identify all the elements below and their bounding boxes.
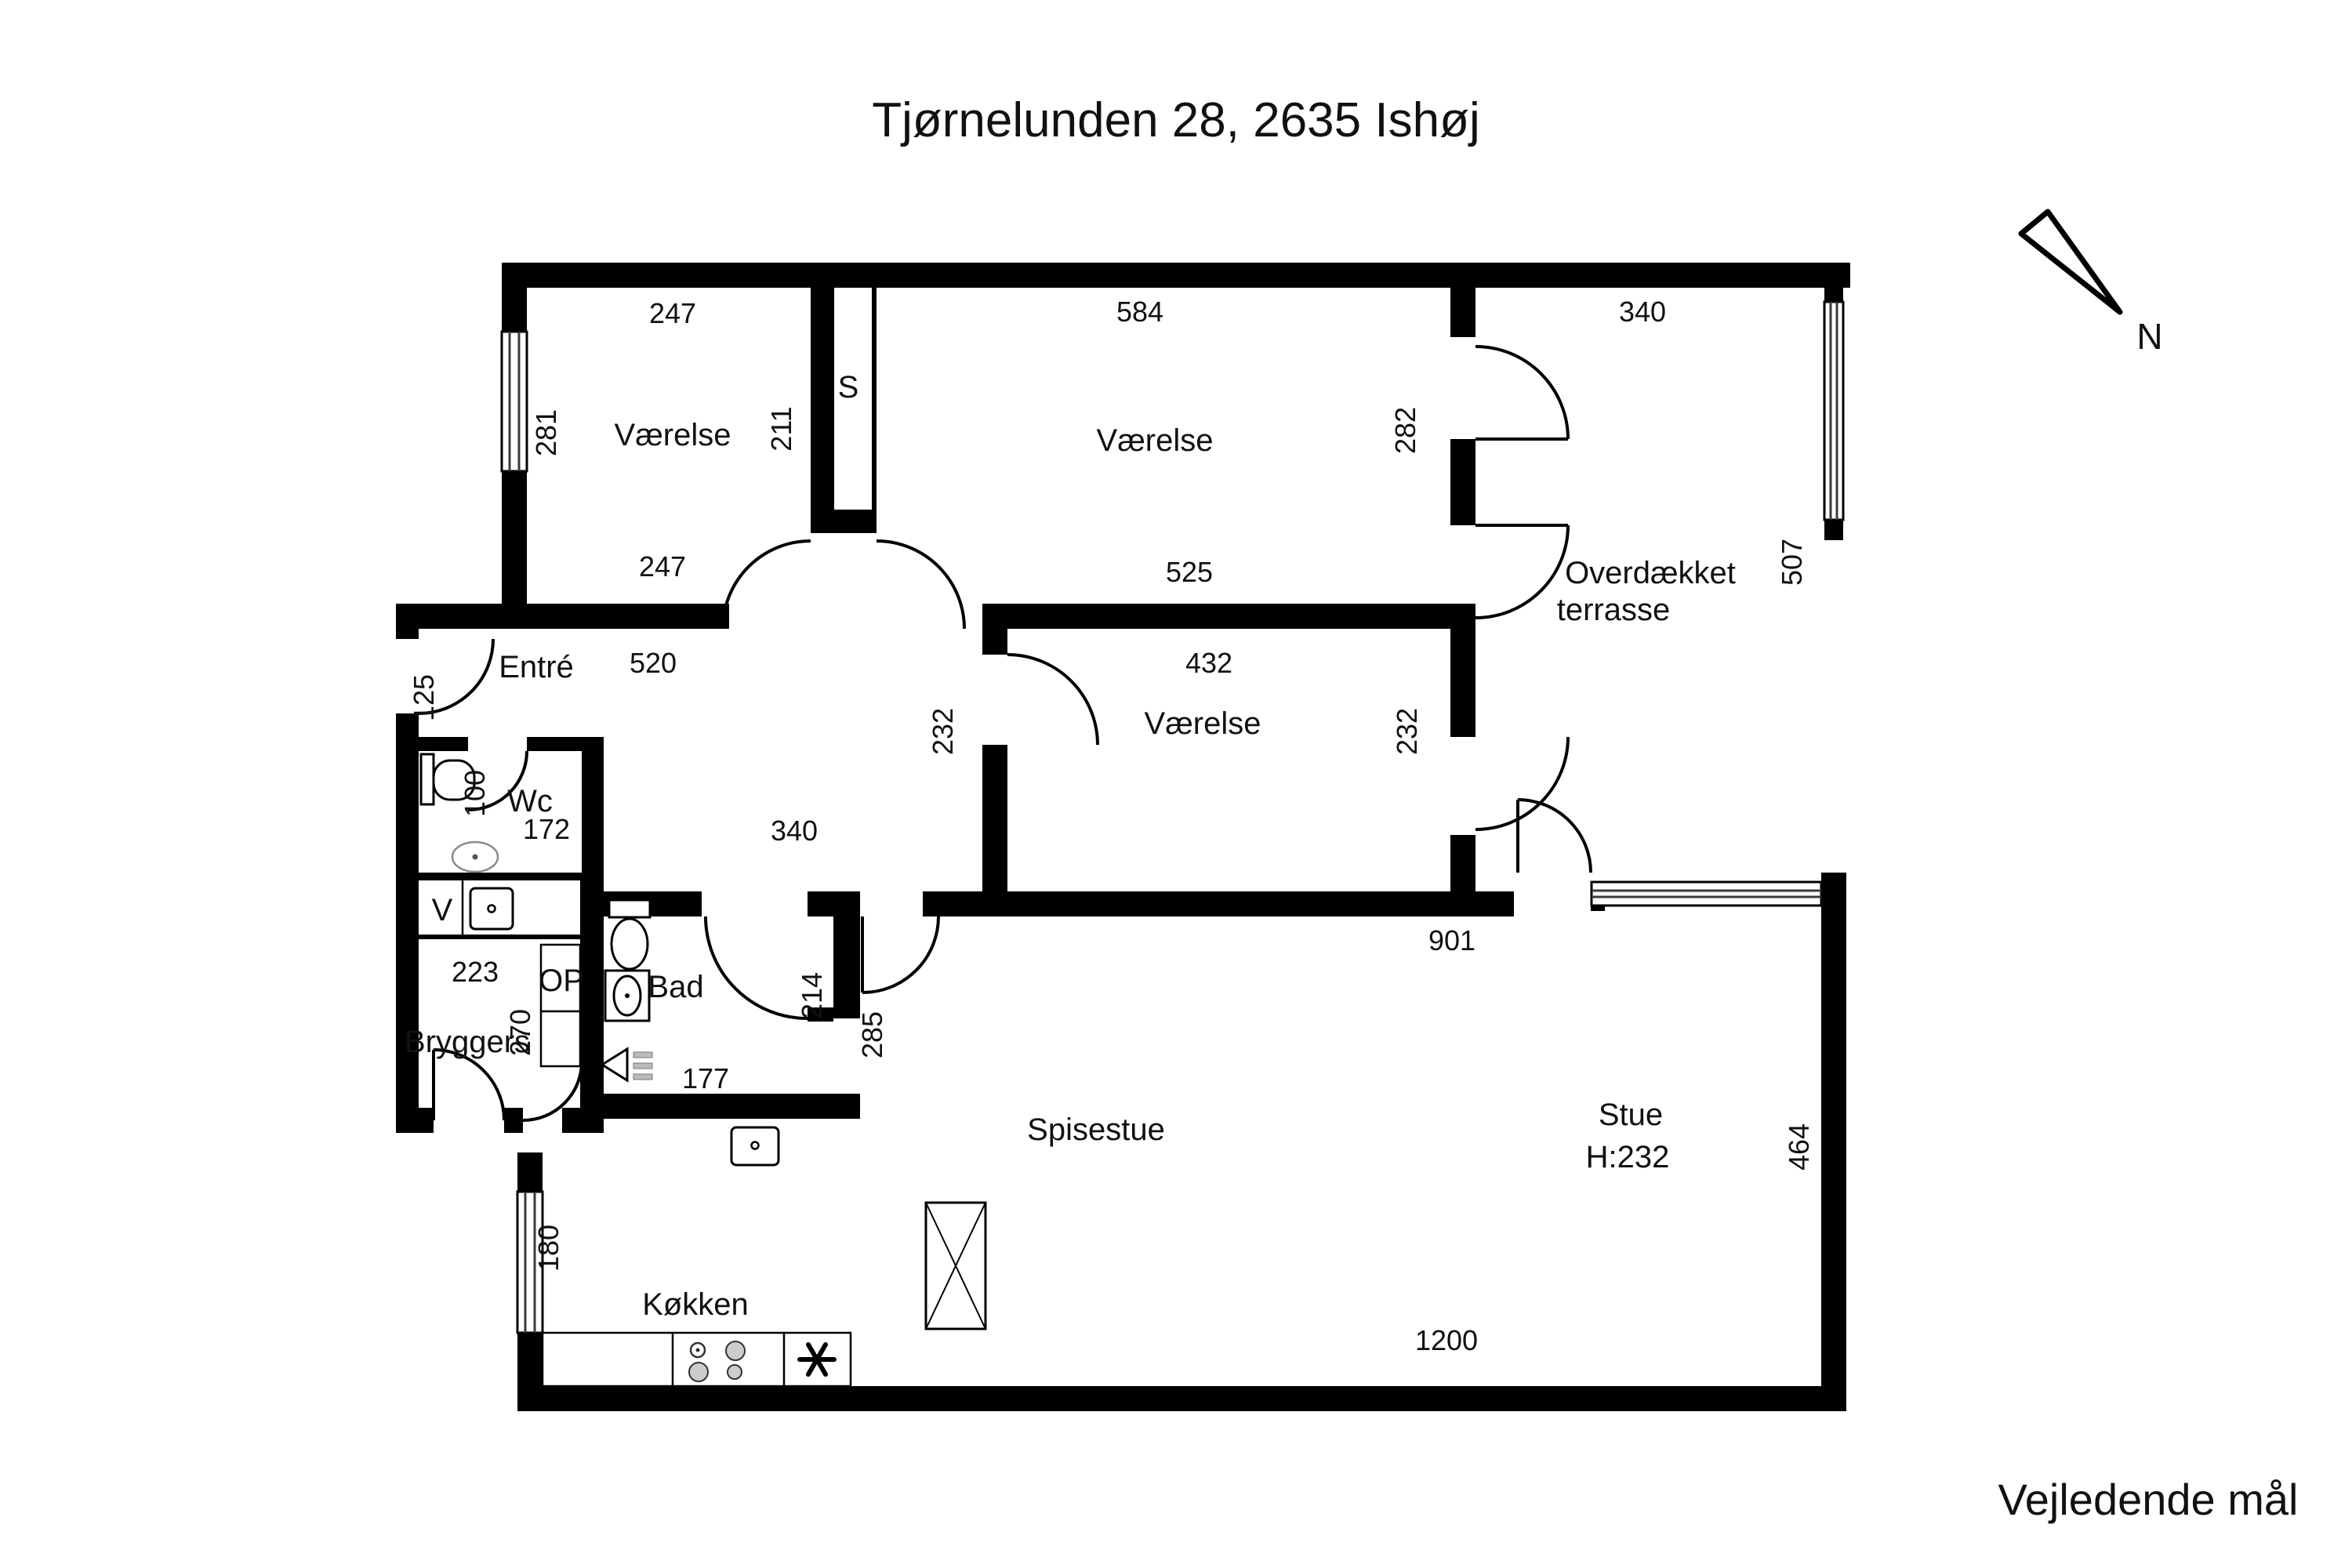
room-koekken: Køkken xyxy=(642,1287,749,1322)
dim-177: 177 xyxy=(682,1062,729,1094)
stue-terrasse-door xyxy=(1518,800,1591,873)
room-vaerelse-3: Værelse xyxy=(1145,706,1261,741)
dim-285: 285 xyxy=(856,1011,888,1058)
dim-223: 223 xyxy=(452,956,499,988)
dim-247-bottom: 247 xyxy=(639,550,686,583)
window-vaerelse-left xyxy=(502,332,527,471)
shower-icon xyxy=(602,1049,652,1080)
page-title: Tjørnelunden 28, 2635 Ishøj xyxy=(0,93,2352,148)
room-terrasse-2: terrasse xyxy=(1557,593,1671,627)
room-stue: Stue xyxy=(1599,1098,1663,1132)
bad-door-arc xyxy=(706,916,808,1018)
dim-584: 584 xyxy=(1116,296,1163,328)
room-entre: Entré xyxy=(499,650,574,684)
dim-214: 214 xyxy=(796,972,828,1019)
dim-232-right: 232 xyxy=(1391,708,1423,755)
hall-spisestue-door xyxy=(862,916,938,993)
dim-270: 270 xyxy=(504,1009,536,1056)
dim-525: 525 xyxy=(1166,556,1213,588)
label-layer: VærelseVærelseVærelseEntréWcBadBryggersK… xyxy=(405,296,1815,1356)
closet-s: S xyxy=(838,370,859,405)
footer-note: Vejledende mål xyxy=(1944,1474,2352,1525)
dim-340-hall: 340 xyxy=(771,815,818,847)
dim-1200: 1200 xyxy=(1415,1324,1478,1356)
compass-north-arrow xyxy=(2021,212,2120,312)
window-terrasse-edge xyxy=(1824,302,1843,520)
room-spisestue: Spisestue xyxy=(1027,1112,1165,1147)
storage-op: OP xyxy=(539,964,584,998)
dim-520: 520 xyxy=(630,647,677,679)
room-stue-height: H:232 xyxy=(1586,1140,1670,1174)
dim-125: 125 xyxy=(408,674,440,721)
dim-211: 211 xyxy=(765,406,797,451)
wc-sink-icon xyxy=(452,842,498,872)
dim-282: 282 xyxy=(1389,407,1421,454)
dim-281: 281 xyxy=(530,409,562,456)
floorplan-page: N VærelseVærelseVærelseEntréWcBadBrygger… xyxy=(0,0,2352,1568)
dim-100: 100 xyxy=(459,770,491,817)
room-vaerelse-1: Værelse xyxy=(615,418,731,452)
floorplan-canvas: N VærelseVærelseVærelseEntréWcBadBrygger… xyxy=(0,0,2352,1568)
kitchen-unit-icon xyxy=(731,1127,779,1165)
dim-507: 507 xyxy=(1776,539,1808,586)
fireplace-icon xyxy=(926,1203,985,1329)
window-stue-top xyxy=(1592,882,1821,906)
terrasse-door-1 xyxy=(1475,347,1568,439)
room-terrasse-1: Overdækket xyxy=(1565,556,1736,590)
bad-toilet-icon xyxy=(609,900,650,969)
dim-247-top: 247 xyxy=(649,297,696,329)
compass: N xyxy=(2021,212,2163,357)
compass-north-label: N xyxy=(2136,316,2162,357)
bad-sink-icon xyxy=(605,971,649,1021)
vaerelse3-door-arc xyxy=(1007,655,1098,745)
laundry-v: V xyxy=(432,893,453,927)
dim-172: 172 xyxy=(523,813,570,845)
dim-432: 432 xyxy=(1185,647,1232,679)
dim-232-left: 232 xyxy=(927,708,959,755)
dim-901: 901 xyxy=(1428,924,1475,956)
terrasse-door-2 xyxy=(1475,525,1568,618)
room-bad: Bad xyxy=(648,970,703,1004)
vaerelse2-door-arc xyxy=(877,541,964,629)
room-vaerelse-2: Værelse xyxy=(1097,423,1214,458)
terrasse-door-3 xyxy=(1475,737,1568,829)
dim-180: 180 xyxy=(532,1225,564,1272)
dim-340-top: 340 xyxy=(1619,296,1666,328)
vaerelse1-door-arc xyxy=(723,541,811,629)
washing-machine-icon xyxy=(463,880,513,935)
dim-464: 464 xyxy=(1783,1123,1815,1171)
